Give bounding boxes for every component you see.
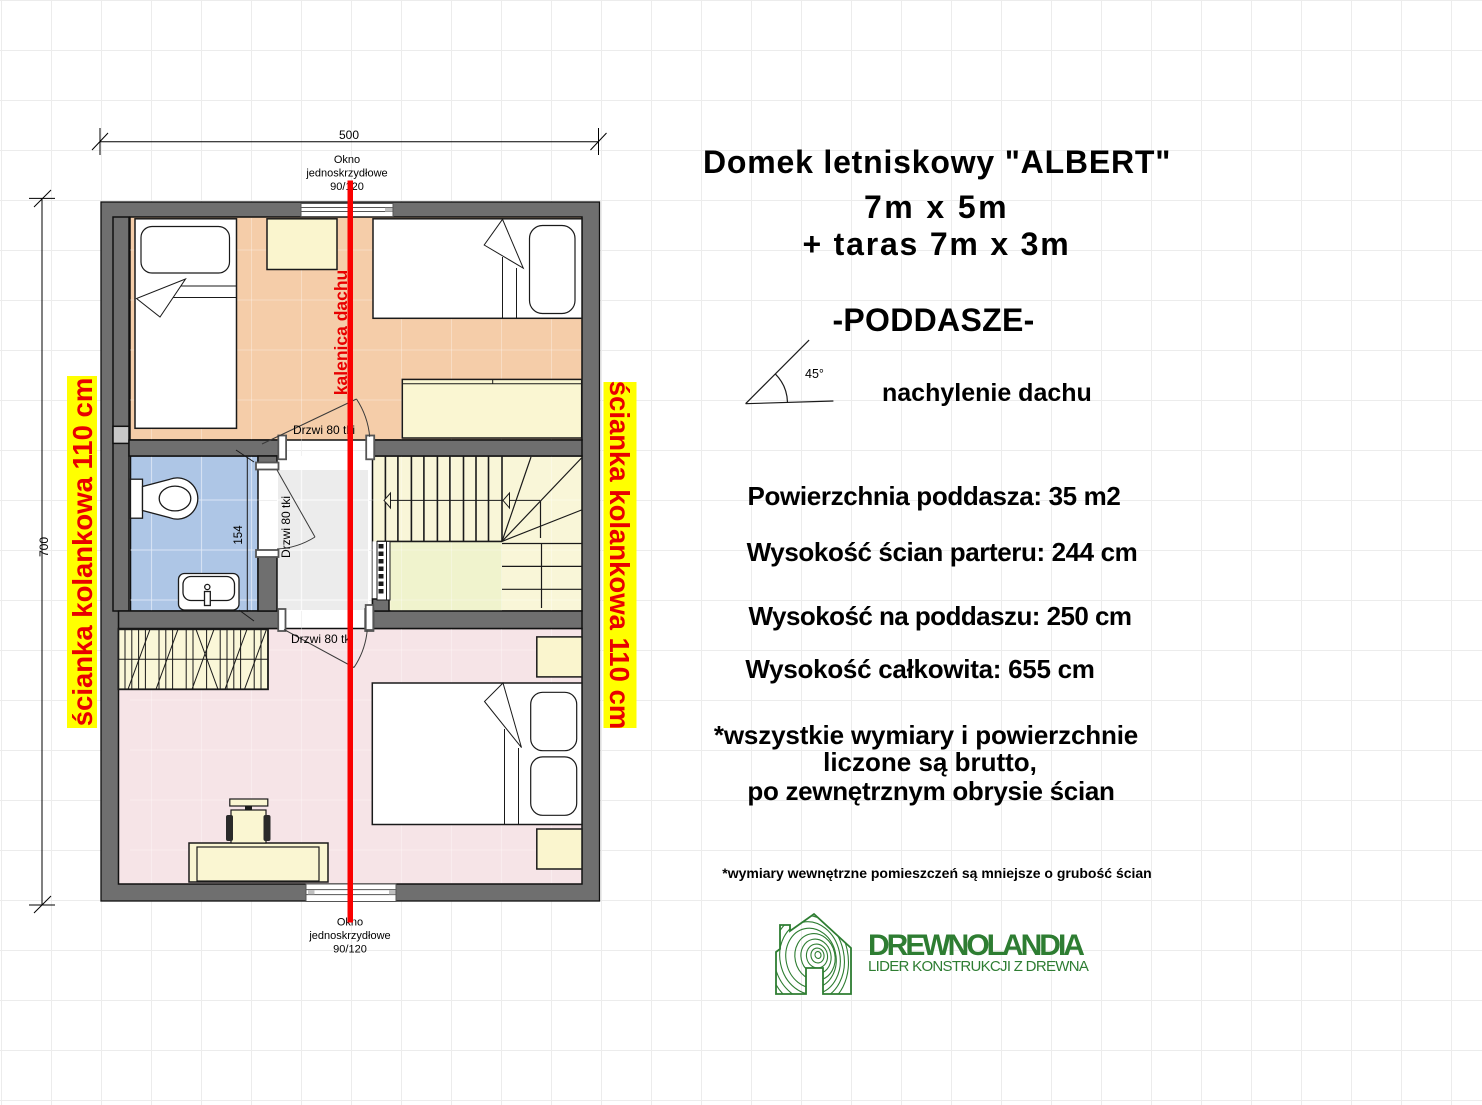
svg-text:154: 154 [233, 525, 245, 545]
svg-text:jednoskrzydłowe: jednoskrzydłowe [305, 168, 387, 180]
svg-text:700: 700 [37, 537, 51, 557]
svg-text:90/120: 90/120 [333, 944, 367, 956]
svg-text:Okno: Okno [334, 154, 360, 166]
svg-text:Drzwi 80 tki: Drzwi 80 tki [291, 632, 353, 646]
svg-text:jednoskrzydłowe: jednoskrzydłowe [308, 930, 390, 942]
svg-text:Drzwi 80 tki: Drzwi 80 tki [293, 423, 355, 437]
svg-text:90/120: 90/120 [330, 181, 364, 193]
svg-text:500: 500 [339, 128, 359, 142]
svg-text:Drzwi 80 tki: Drzwi 80 tki [279, 496, 293, 558]
svg-text:45°: 45° [805, 367, 824, 381]
svg-text:ścianka kolankowa 110 cm: ścianka kolankowa 110 cm [67, 378, 98, 727]
